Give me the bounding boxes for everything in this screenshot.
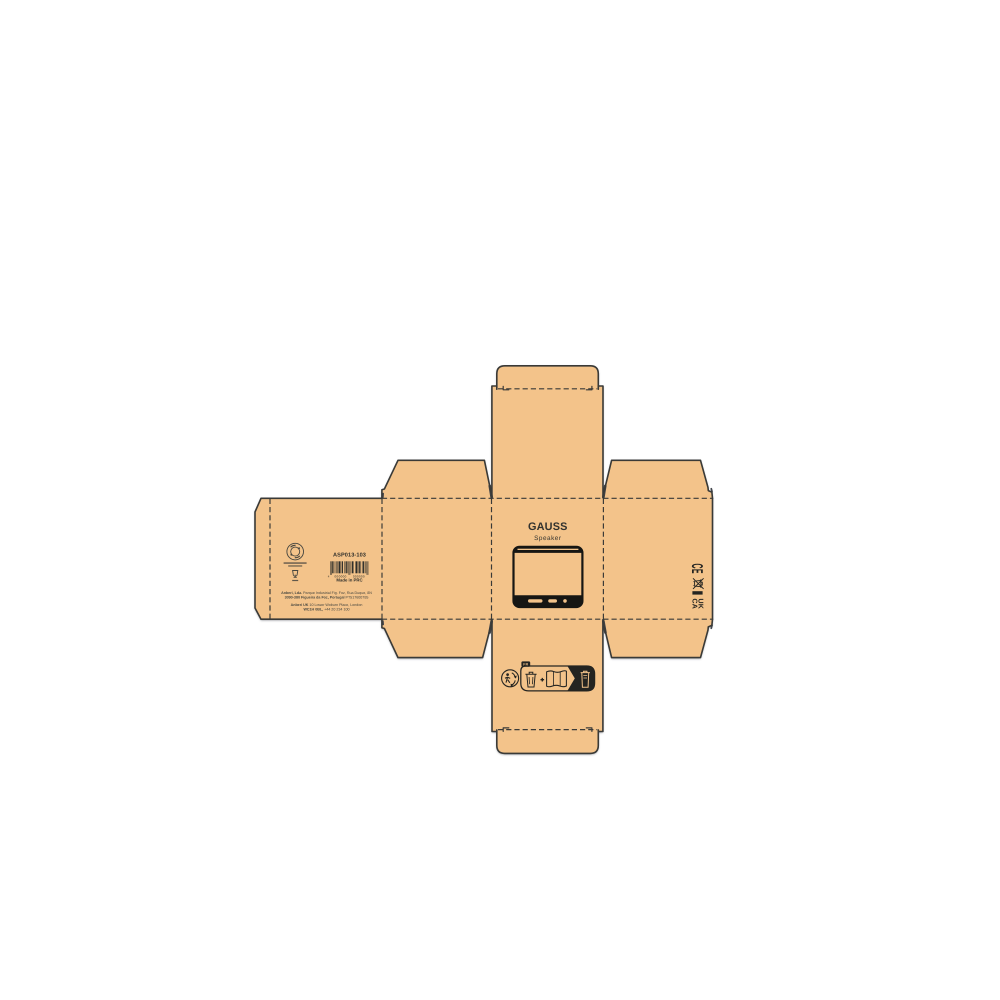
svg-text:WC1H 0BL, +44 20 234 100: WC1H 0BL, +44 20 234 100: [303, 608, 349, 612]
svg-text:Anberi, Lda. Parque Industrial: Anberi, Lda. Parque Industrial Fig. Foz,…: [281, 591, 372, 595]
svg-text:3090-380 Figueira da Foz, Port: 3090-380 Figueira da Foz, Portugal PT517…: [285, 596, 369, 600]
svg-text:ASP013-103: ASP013-103: [333, 552, 366, 558]
svg-text:Made in PRC: Made in PRC: [336, 578, 362, 583]
svg-text:Speaker: Speaker: [534, 535, 562, 542]
svg-text:GAUSS: GAUSS: [528, 521, 567, 533]
svg-text:Anberi UK 10 Lower Woburn Plac: Anberi UK 10 Lower Woburn Place, London: [291, 603, 363, 607]
svg-text:CA: CA: [690, 598, 697, 609]
svg-text:CE: CE: [688, 563, 706, 573]
